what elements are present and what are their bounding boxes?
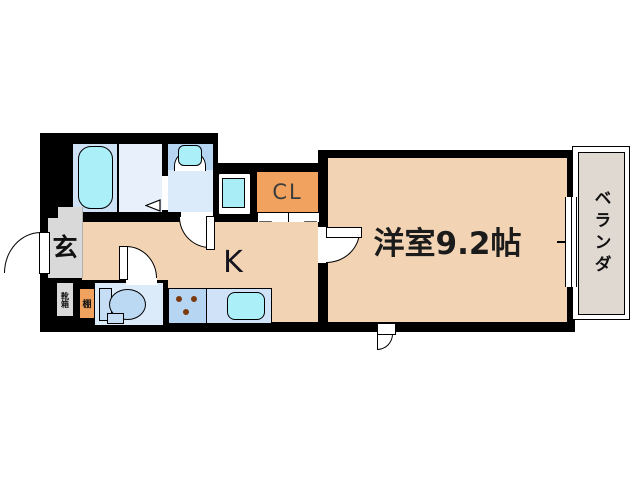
bathtub [78, 146, 113, 209]
toilet-seat-step [107, 313, 124, 324]
shoebox-label: 靴箱 [57, 283, 73, 316]
kitchen-label: K [216, 246, 250, 278]
window-tick [557, 241, 566, 243]
small-door-arc [377, 334, 393, 350]
veranda-label: ベランダ [578, 152, 624, 313]
wash-basin [178, 145, 202, 166]
entrance-door-leaf [39, 232, 50, 274]
kitchen-sink [227, 292, 265, 320]
washer-tub [222, 178, 245, 208]
burner-dot-3 [183, 309, 189, 315]
toilet-door-leaf [119, 246, 128, 280]
floor-plan-canvas: ベランダ CL K 玄 靴箱 棚 [0, 0, 638, 480]
burner-dot-1 [176, 296, 182, 302]
folding-door-icon [145, 199, 161, 212]
shelf-label: 棚 [80, 289, 94, 318]
stove-counter [168, 288, 207, 324]
small-door-hinge-line [377, 334, 378, 349]
main-room-door-leaf [326, 227, 362, 238]
washroom-door-leaf [206, 216, 215, 250]
window-slider [565, 197, 577, 287]
kitchen-floor-c [270, 288, 318, 322]
window-center-line [571, 197, 572, 287]
entrance-label: 玄 [48, 226, 82, 266]
burner-dot-2 [191, 296, 197, 302]
main-room-label: 洋室9.2帖 [328, 158, 567, 322]
changing-doorway [162, 176, 168, 210]
entrance-door-arc [4, 232, 41, 273]
entrance-area-upper [58, 207, 83, 218]
closet-label: CL [257, 172, 318, 212]
